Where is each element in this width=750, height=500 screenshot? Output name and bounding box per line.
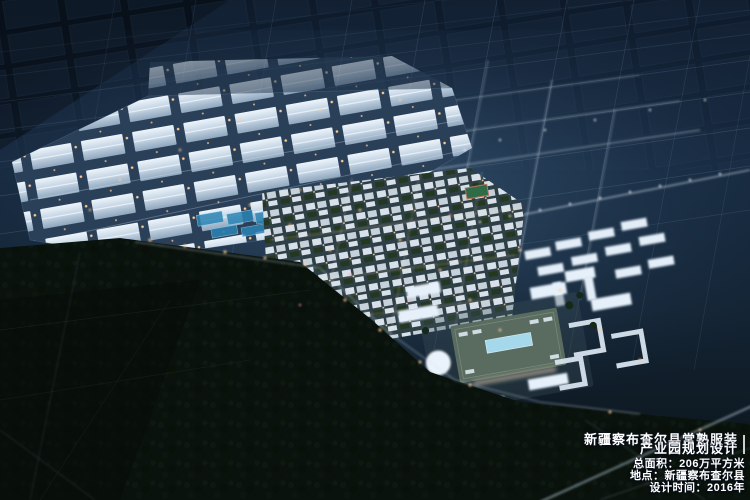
project-design-time: 设计时间：2016年	[584, 483, 745, 494]
project-location: 地点：新疆察布查尔县	[584, 471, 745, 482]
aerial-city-rendering	[0, 0, 750, 500]
rendering-viewport: 新疆察布查尔县常熟服装 产业园规划设计 总面积：206万平方米 地点：新疆察布查…	[0, 0, 750, 500]
project-caption: 新疆察布查尔县常熟服装 产业园规划设计 总面积：206万平方米 地点：新疆察布查…	[584, 435, 745, 495]
project-title: 新疆察布查尔县常熟服装 产业园规划设计	[584, 435, 745, 454]
project-area: 总面积：206万平方米	[584, 459, 745, 470]
